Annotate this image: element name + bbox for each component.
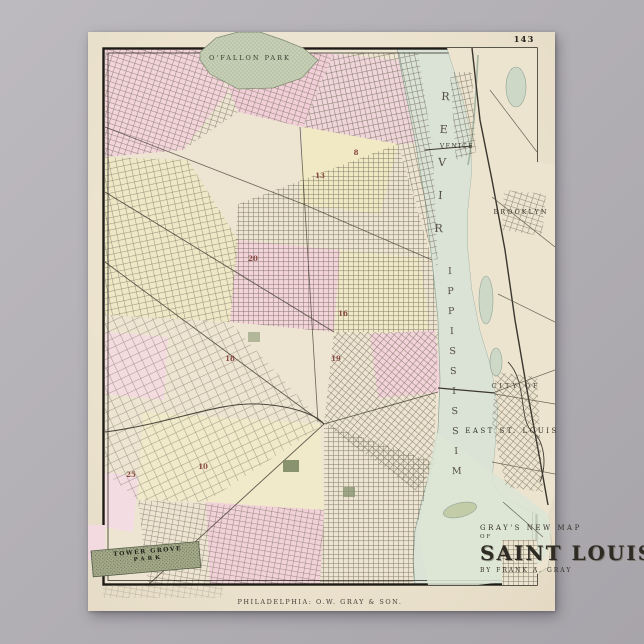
ward-number: 19 (331, 354, 341, 363)
ward-number: 16 (338, 309, 348, 318)
ward-number: 18 (225, 354, 235, 363)
east-st-louis-label-line1: CITY OF (491, 382, 540, 390)
ofallon-park-label: O'FALLON PARK (209, 54, 291, 62)
east-st-louis-label-line2: EAST ST. LOUIS (465, 427, 559, 435)
product-photo-background: 143 O'FALLON PARK VENICE BROOKLYN CITY O… (0, 0, 644, 644)
ward-number: 20 (248, 254, 258, 263)
map-poster: 143 O'FALLON PARK VENICE BROOKLYN CITY O… (88, 32, 555, 611)
publisher-imprint: PHILADELPHIA: O.W. GRAY & SON. (238, 598, 403, 606)
ward-number: 8 (354, 148, 359, 157)
brooklyn-label: BROOKLYN (493, 208, 548, 216)
ward-number: 25 (126, 470, 136, 479)
ward-number: 13 (315, 171, 325, 180)
ward-number: 10 (198, 462, 208, 471)
plate-number: 143 (508, 35, 540, 45)
